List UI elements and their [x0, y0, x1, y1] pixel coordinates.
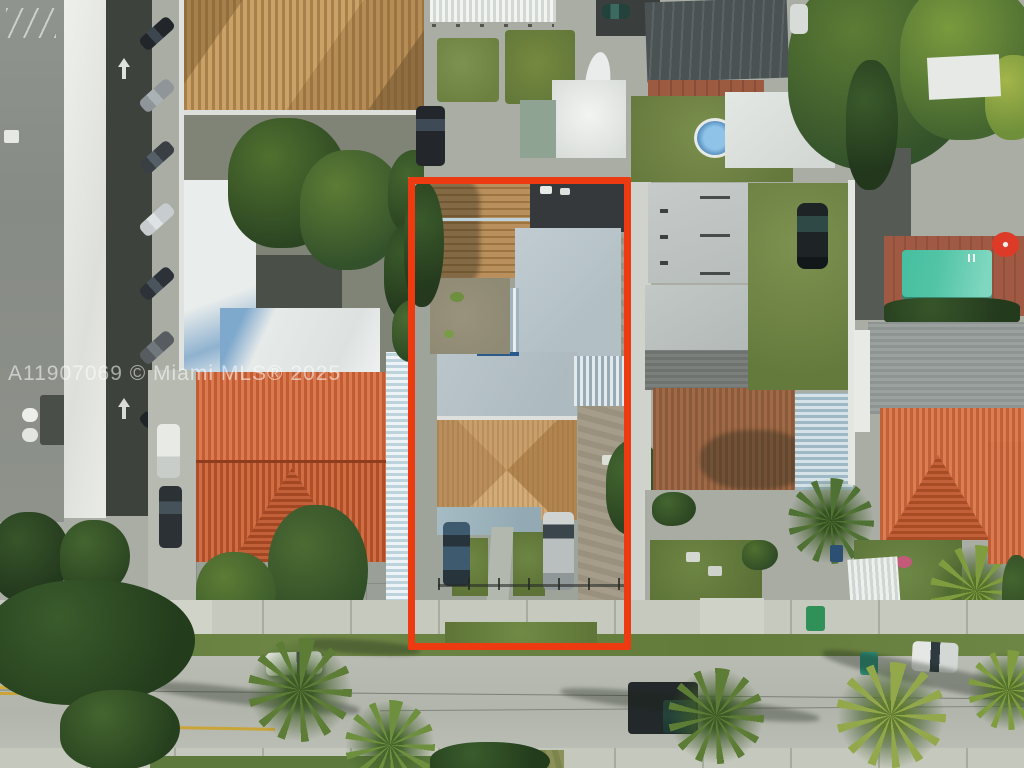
flower-bush	[896, 556, 912, 568]
roof-ridge	[196, 460, 390, 463]
aerial-photo: A11907069 © Miami MLS® 2025	[0, 0, 1024, 768]
lawn-patch	[437, 38, 499, 102]
tan-shingle-roof	[184, 0, 432, 112]
gray-shed-roof	[520, 100, 556, 158]
parking-aisle	[106, 0, 152, 516]
palm-tree	[668, 668, 764, 764]
parked-white-van	[157, 424, 180, 478]
ac-unit	[22, 428, 38, 442]
red-umbrella	[992, 232, 1019, 257]
swimming-pool	[902, 250, 992, 300]
roof-vents	[700, 195, 730, 275]
white-carport-roof	[430, 0, 556, 22]
pavement-arrow	[118, 58, 130, 67]
pavement-arrow	[118, 398, 130, 407]
tree-shadow	[700, 430, 810, 490]
parked-teal-car	[602, 4, 630, 19]
ac-unit	[22, 408, 38, 422]
white-hip-roof	[552, 80, 626, 158]
carport-posts	[432, 24, 554, 27]
white-strip-building-roof	[64, 0, 106, 518]
trash-bin-green	[806, 606, 825, 631]
stepping-stone	[708, 566, 722, 576]
pool-ladder	[968, 254, 978, 262]
watermark: A11907069 © Miami MLS® 2025	[8, 362, 341, 386]
parked-dark-car	[159, 486, 182, 548]
palm-tree	[836, 662, 946, 768]
rooftop-equipment	[40, 395, 66, 445]
tree-canopy	[60, 690, 180, 768]
parked-dark-car	[416, 106, 445, 166]
dark-metal-roof	[645, 0, 790, 82]
palm-tree	[248, 638, 352, 742]
pavement-arrow-stem	[122, 407, 126, 419]
car-on-lawn	[797, 203, 828, 269]
ac-unit	[4, 130, 19, 143]
white-shed-roof	[927, 54, 1001, 100]
subject-property-outline	[408, 177, 631, 650]
roof-vents	[660, 205, 668, 265]
blue-metal-roof	[795, 393, 853, 490]
white-gable-wall	[854, 330, 870, 432]
trash-bin-blue	[830, 545, 843, 562]
parked-van	[790, 4, 808, 34]
pavement-arrow-stem	[122, 67, 126, 79]
stepping-stone	[686, 552, 700, 562]
gray-shingle-roof	[868, 322, 1024, 414]
rooftop-lane-marks	[6, 8, 56, 38]
orange-roof-edge	[988, 442, 1024, 564]
